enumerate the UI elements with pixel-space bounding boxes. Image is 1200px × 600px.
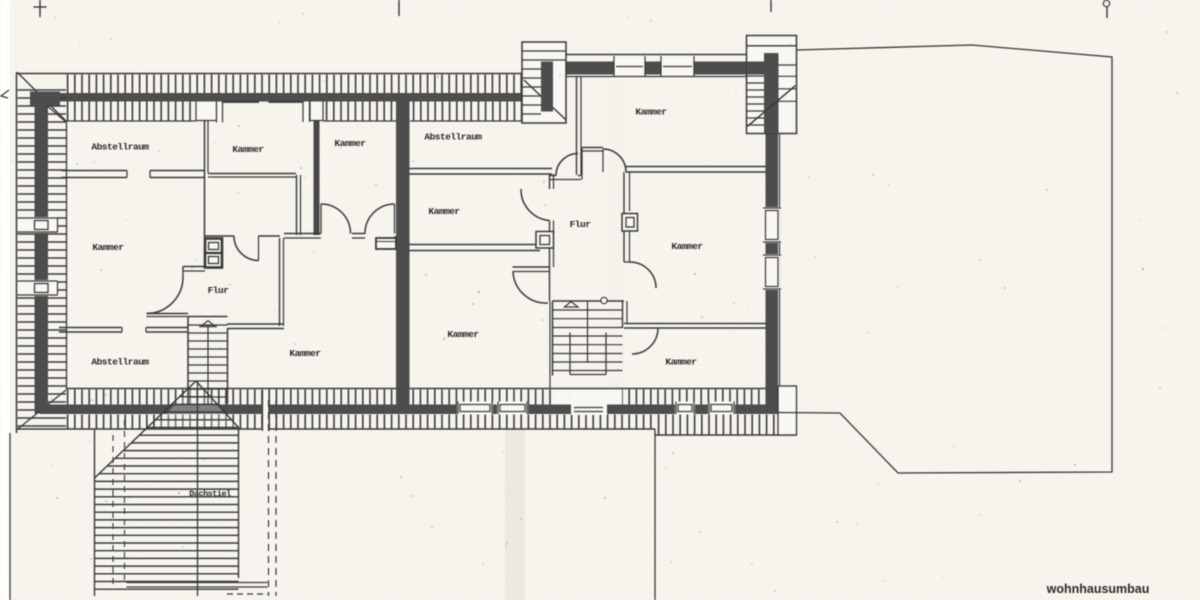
svg-text:Flur: Flur [208,285,230,296]
svg-text:Flur: Flur [570,219,592,230]
svg-text:Kammer: Kammer [447,329,479,340]
svg-text:Kammer: Kammer [289,348,321,359]
svg-text:Abstellraum: Abstellraum [424,132,482,143]
svg-text:Dachstiel: Dachstiel [189,489,231,499]
svg-text:Kammer: Kammer [428,206,460,217]
svg-text:Abstellraum: Abstellraum [91,142,149,153]
svg-text:Kammer: Kammer [232,144,264,155]
svg-text:Kammer: Kammer [671,241,703,252]
svg-text:Kammer: Kammer [635,107,667,118]
svg-text:Kammer: Kammer [92,242,124,253]
svg-text:Kammer: Kammer [334,138,366,149]
svg-text:wohnhausumbau: wohnhausumbau [1046,582,1150,596]
svg-text:Kammer: Kammer [665,357,697,368]
svg-text:Abstellraum: Abstellraum [91,357,149,368]
